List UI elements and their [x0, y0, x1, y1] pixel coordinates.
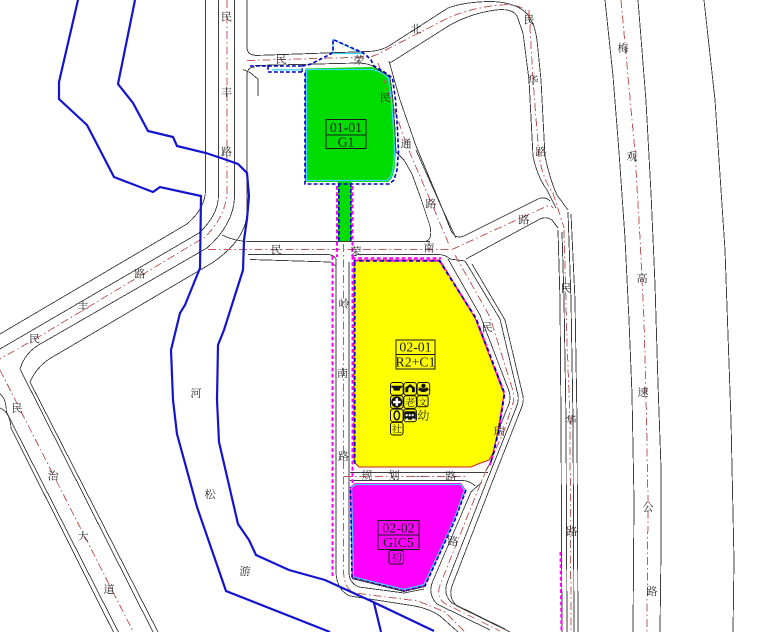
svg-text:02-02: 02-02 — [382, 520, 414, 535]
svg-text:01-01: 01-01 — [330, 120, 362, 135]
svg-text:R2+C1: R2+C1 — [396, 354, 436, 369]
svg-text:GIC5: GIC5 — [383, 535, 414, 550]
svg-text:02-01: 02-01 — [399, 340, 431, 355]
svg-text:G1: G1 — [338, 134, 355, 149]
